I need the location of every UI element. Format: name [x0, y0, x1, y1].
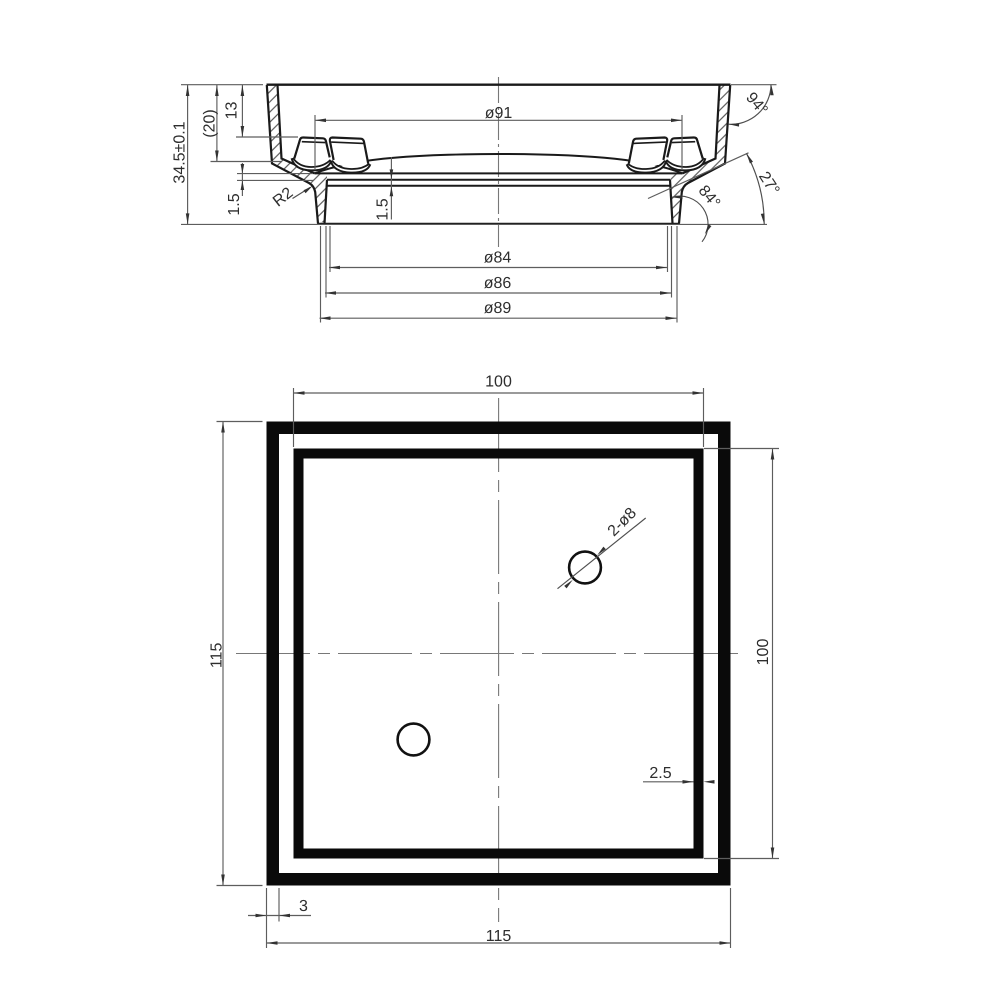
svg-text:ø89: ø89	[484, 300, 512, 317]
svg-text:115: 115	[486, 928, 512, 945]
svg-text:ø91: ø91	[485, 105, 513, 122]
svg-text:2.5: 2.5	[649, 765, 671, 782]
svg-text:13: 13	[223, 102, 240, 120]
svg-text:1.5: 1.5	[226, 193, 243, 215]
svg-text:1.5: 1.5	[375, 198, 392, 220]
svg-text:ø86: ø86	[484, 275, 512, 292]
svg-text:R2: R2	[270, 184, 297, 210]
svg-text:3: 3	[299, 898, 308, 915]
svg-text:27°: 27°	[755, 169, 782, 199]
svg-text:115: 115	[208, 643, 225, 669]
svg-text:94°: 94°	[742, 89, 771, 118]
svg-text:84°: 84°	[695, 182, 724, 211]
svg-text:2-ø8: 2-ø8	[605, 505, 640, 540]
svg-text:100: 100	[755, 639, 772, 666]
svg-text:ø84: ø84	[484, 250, 512, 267]
svg-text:34.5±0.1: 34.5±0.1	[171, 121, 188, 183]
svg-text:100: 100	[485, 374, 512, 391]
svg-text:(20): (20)	[201, 109, 218, 137]
